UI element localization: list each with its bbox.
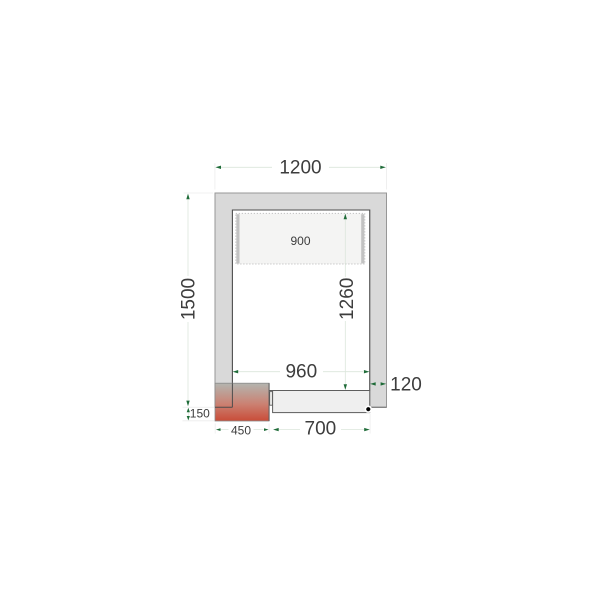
svg-text:700: 700 xyxy=(305,419,337,440)
svg-text:150: 150 xyxy=(190,407,210,421)
svg-text:960: 960 xyxy=(285,362,317,383)
svg-text:450: 450 xyxy=(231,424,251,438)
svg-text:900: 900 xyxy=(290,234,310,248)
svg-text:1500: 1500 xyxy=(179,278,200,320)
svg-text:1200: 1200 xyxy=(279,158,321,179)
svg-text:120: 120 xyxy=(390,374,422,395)
svg-text:1260: 1260 xyxy=(337,278,358,320)
